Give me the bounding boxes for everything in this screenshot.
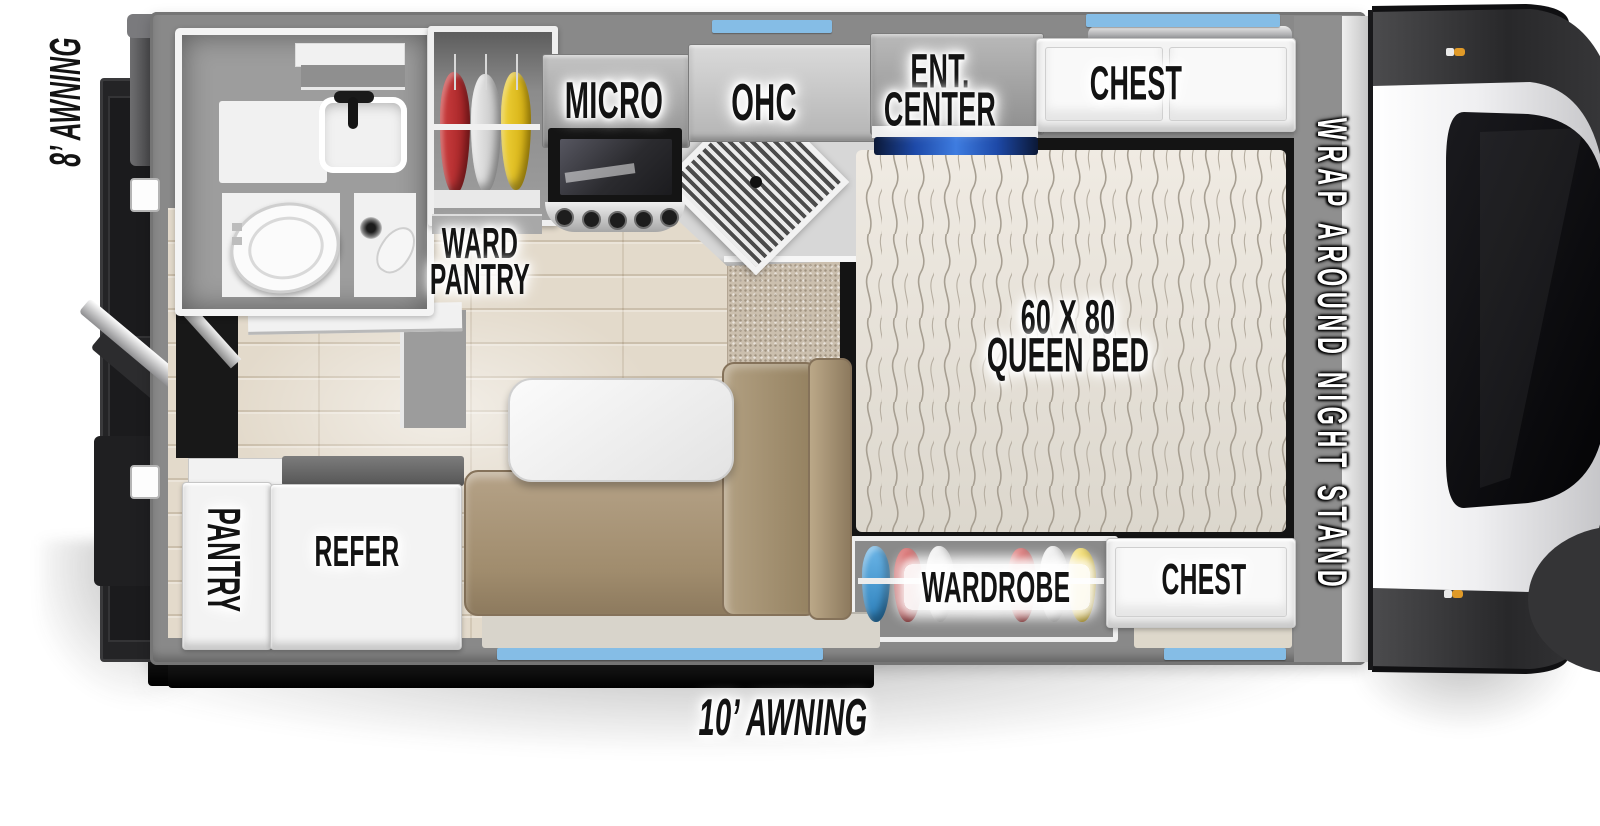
window-strip-top-1 <box>712 20 832 33</box>
window-strip-top-2 <box>1086 14 1280 27</box>
stove <box>545 124 687 234</box>
bath-counter <box>219 101 327 183</box>
shower-drain <box>360 217 382 239</box>
label-wardrobe: WARDROBE <box>863 563 1129 613</box>
closet-rod <box>434 124 540 130</box>
label-refer: REFER <box>281 527 433 577</box>
truck-cab <box>1358 0 1600 680</box>
label-bed-2: QUEEN BED <box>923 329 1213 384</box>
stove-knob-4 <box>634 210 653 229</box>
awning-strip-bottom <box>497 648 823 660</box>
dinette-table <box>508 378 734 482</box>
bath-sink <box>319 97 407 173</box>
exterior-light-2 <box>130 465 160 499</box>
tv-strip <box>874 137 1038 155</box>
toilet-hinge-2 <box>232 237 242 245</box>
label-chest-top: CHEST <box>1053 57 1218 112</box>
label-micro: MICRO <box>526 71 702 131</box>
faucet-spout <box>348 97 358 129</box>
cab-gap-line <box>1368 10 1373 670</box>
marker-light-bottom <box>1444 590 1463 598</box>
sofa-back-cushion <box>722 362 818 616</box>
medicine-cabinet <box>295 43 405 67</box>
underbody-rail <box>168 662 874 688</box>
closet-base-shelf <box>434 190 540 208</box>
hanger-wire-2 <box>485 54 487 90</box>
exterior-light-1 <box>130 178 160 212</box>
refer-lid <box>282 456 464 486</box>
sofa-armrest <box>808 358 852 620</box>
label-night-stand: WRAP AROUND NIGHT STAND <box>1308 0 1356 779</box>
label-pantry: PANTRY <box>197 467 251 654</box>
label-awning-bottom: 10’ AWNING <box>632 688 934 748</box>
clothes-white <box>471 74 501 192</box>
hanger-wire-1 <box>454 54 456 90</box>
stove-knob-5 <box>660 208 679 227</box>
label-ohc: OHC <box>705 73 822 133</box>
stove-knob-1 <box>555 208 574 227</box>
label-ent-center-2: CENTER <box>840 83 1040 138</box>
marker-light-top <box>1446 48 1465 56</box>
floorplan-canvas: 8’ AWNING 10’ AWNING WARD PANTRY MICRO O… <box>0 0 1600 826</box>
window-strip-bottom-2 <box>1164 648 1286 660</box>
vanity-shelf <box>301 65 405 90</box>
toilet-hinge-1 <box>232 223 242 231</box>
label-chest-bottom: CHEST <box>1128 555 1280 605</box>
stove-knob-2 <box>582 210 601 229</box>
label-ward-pantry-2: PANTRY <box>391 255 570 305</box>
stove-knob-3 <box>608 211 627 230</box>
sink-drain <box>748 174 765 191</box>
label-awning-left: 8’ AWNING <box>41 0 91 218</box>
hanger-wire-3 <box>516 54 518 90</box>
clothes-red <box>440 72 470 194</box>
